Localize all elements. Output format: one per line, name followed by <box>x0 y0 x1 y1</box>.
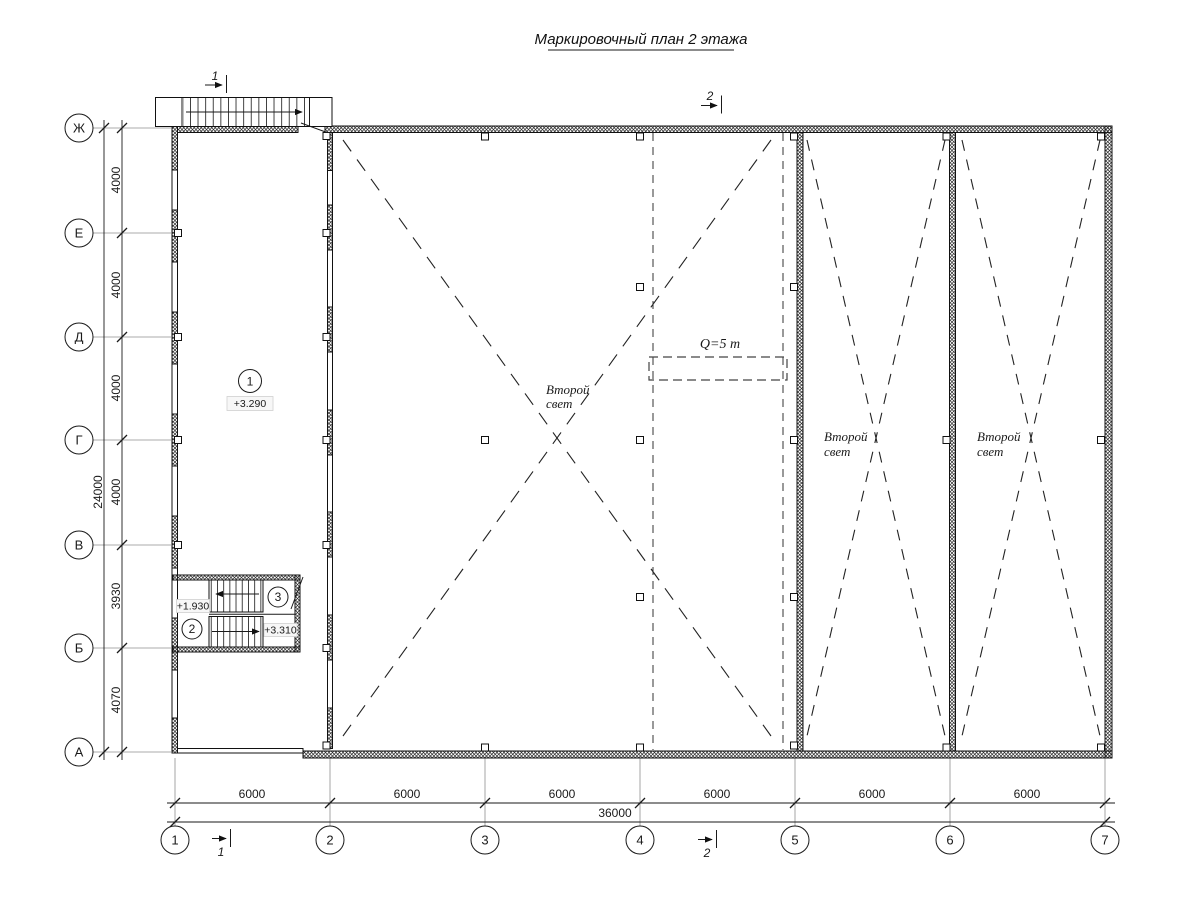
svg-text:2: 2 <box>189 622 196 636</box>
stair-enclosure-wall-bottom <box>173 647 300 652</box>
section-mark-1-top: 1 <box>205 69 227 93</box>
svg-text:Д: Д <box>75 330 84 345</box>
bottom-dimensions: 6000 6000 6000 6000 6000 6000 36000 <box>167 787 1115 827</box>
dim-label: 4000 <box>109 166 123 193</box>
floor-plan-drawing: Маркировочный план 2 этажа 4000 4000 400… <box>0 0 1200 900</box>
wall-axis7 <box>1105 126 1112 758</box>
dim-label: 4000 <box>109 374 123 401</box>
svg-text:2: 2 <box>703 846 711 860</box>
elevation-label: +3.290 <box>234 398 267 410</box>
wall-bottom-main <box>303 751 1112 758</box>
svg-text:В: В <box>75 538 84 553</box>
second-light-label: Второй <box>824 429 868 444</box>
svg-text:3: 3 <box>481 833 488 848</box>
svg-text:4: 4 <box>636 833 643 848</box>
stair-flight-upper <box>209 580 263 612</box>
row-axis-leaders <box>93 128 171 752</box>
hall-mark: 1 +3.290 <box>227 370 273 411</box>
svg-text:1: 1 <box>171 833 178 848</box>
svg-text:2: 2 <box>326 833 333 848</box>
svg-text:1: 1 <box>212 69 219 83</box>
hoist-capacity-label: Q=5 т <box>700 337 740 352</box>
hall-second-light: Второй свет <box>343 140 771 736</box>
second-light-label: Второй <box>977 429 1021 444</box>
svg-text:6: 6 <box>946 833 953 848</box>
col-axis-bubbles: 1 2 3 4 5 6 7 <box>161 826 1119 854</box>
svg-text:1: 1 <box>247 375 254 389</box>
interior-staircase: 2 +1.930 3 +3.310 <box>177 577 304 647</box>
dim-label: 6000 <box>549 787 576 801</box>
bay56-second-light: Второй свет <box>807 140 945 736</box>
wall-bottom-left-window-band <box>172 749 303 754</box>
stair-enclosure-wall-top <box>173 575 300 580</box>
svg-text:Ж: Ж <box>73 121 85 136</box>
svg-text:Б: Б <box>75 641 84 656</box>
section-mark-2-top: 2 <box>701 89 722 114</box>
row-axis-bubbles: Ж Е Д Г В Б А <box>65 114 93 766</box>
elevation-label: +1.930 <box>177 601 210 613</box>
col-axis-extensions <box>175 758 1105 827</box>
svg-text:Е: Е <box>75 226 84 241</box>
second-light-label: свет <box>546 396 572 411</box>
second-light-label: свет <box>977 444 1003 459</box>
hoist-beam <box>649 357 787 380</box>
dim-label: 4070 <box>109 686 123 713</box>
dim-label: 3930 <box>109 582 123 609</box>
dim-label: 6000 <box>1014 787 1041 801</box>
wall-top-main <box>325 126 1112 133</box>
svg-text:7: 7 <box>1101 833 1108 848</box>
section-mark-1-bottom: 1 <box>212 829 231 859</box>
svg-text:Г: Г <box>75 433 82 448</box>
svg-text:5: 5 <box>791 833 798 848</box>
bay67-second-light: Второй свет <box>962 140 1100 736</box>
hoist-runway: Q=5 т <box>649 133 787 750</box>
dim-total-label: 36000 <box>598 806 632 820</box>
svg-text:А: А <box>75 745 84 760</box>
column-markers <box>175 133 1105 752</box>
svg-text:3: 3 <box>275 590 282 604</box>
page-title: Маркировочный план 2 этажа <box>535 31 748 48</box>
drawing-title: Маркировочный план 2 этажа <box>535 31 748 50</box>
svg-text:1: 1 <box>218 845 225 859</box>
section-mark-2-bottom: 2 <box>698 830 717 860</box>
second-light-label: свет <box>824 444 850 459</box>
dim-label: 6000 <box>704 787 731 801</box>
elevation-label: +3.310 <box>264 625 297 637</box>
dim-label: 6000 <box>239 787 266 801</box>
svg-text:2: 2 <box>706 89 714 103</box>
dim-label: 6000 <box>394 787 421 801</box>
dim-label: 4000 <box>109 271 123 298</box>
dim-label: 4000 <box>109 478 123 505</box>
second-light-label: Второй <box>546 382 590 397</box>
dim-total-label: 24000 <box>91 475 105 509</box>
dim-label: 6000 <box>859 787 886 801</box>
